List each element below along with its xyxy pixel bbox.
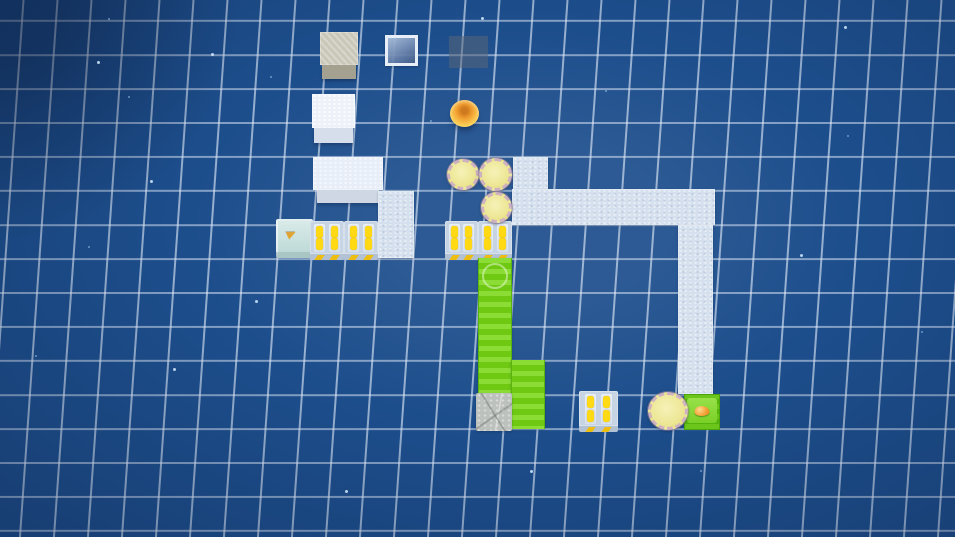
path-band-horizontal[interactable] (512, 189, 715, 225)
conveyor-b1[interactable] (445, 221, 478, 260)
dust-speck (921, 331, 923, 333)
belt-dash (587, 410, 594, 422)
belt-dash (365, 226, 372, 238)
dust-speck (530, 470, 533, 473)
belt-dash (587, 396, 594, 408)
gear-button-2[interactable] (479, 158, 512, 191)
belt-dash (499, 226, 506, 238)
dust-speck (35, 355, 37, 357)
target-ring (482, 263, 508, 289)
dust-speck (128, 96, 130, 98)
green-belt-a[interactable] (478, 258, 512, 395)
belt-dash (484, 238, 491, 250)
dust-speck (800, 254, 803, 257)
ghost-tile[interactable] (449, 36, 488, 68)
dust-speck (88, 246, 90, 248)
dust-speck (108, 18, 110, 20)
conveyor-lane (348, 224, 359, 252)
raised-platform-top-face (313, 157, 383, 190)
conveyor-a2[interactable] (344, 221, 378, 260)
cracked-stone-tile[interactable] (476, 393, 512, 431)
conveyor-lane (463, 224, 474, 252)
dust-speck (270, 76, 272, 78)
goal-tile[interactable] (684, 394, 720, 430)
gear-button-3[interactable] (481, 192, 512, 223)
belt-dash (451, 226, 458, 238)
dust-speck (255, 300, 258, 303)
belt-dash (331, 226, 338, 238)
orange-orb[interactable] (450, 100, 479, 127)
gear-button-4[interactable] (648, 392, 688, 430)
dust-speck (430, 120, 432, 122)
dust-speck (481, 17, 484, 20)
ice-cube-top-face (312, 94, 355, 128)
belt-dash (350, 238, 357, 250)
belt-dash (603, 410, 610, 422)
belt-dash (331, 238, 338, 250)
ice-cube[interactable] (312, 94, 355, 143)
belt-dash (499, 238, 506, 250)
stone-cube-front-face (322, 65, 356, 79)
path-tile-vertical[interactable] (378, 191, 414, 258)
belt-dash (316, 226, 323, 238)
belt-dash (465, 238, 472, 250)
belt-dash (465, 226, 472, 238)
belt-dash (350, 226, 357, 238)
conveyor-lane (482, 224, 493, 252)
conveyor-lane (449, 224, 460, 252)
conveyor-lane (601, 394, 612, 424)
conveyor-lane (497, 224, 508, 252)
gear-button-1[interactable] (447, 159, 479, 190)
arrow-icon (286, 228, 298, 239)
spawn-pad[interactable] (276, 219, 313, 258)
fish-icon (695, 406, 710, 416)
dust-speck (844, 26, 847, 29)
conveyor-c1[interactable] (579, 391, 618, 432)
path-column-vertical[interactable] (678, 225, 713, 394)
dust-speck (173, 368, 176, 371)
dust-speck (847, 135, 849, 137)
belt-dash (484, 226, 491, 238)
game-board[interactable] (0, 0, 955, 537)
dust-speck (700, 470, 702, 472)
belt-dash (451, 238, 458, 250)
belt-dash (365, 238, 372, 250)
conveyor-lane (363, 224, 374, 252)
dust-speck (345, 490, 348, 493)
raised-platform[interactable] (313, 157, 383, 203)
dust-speck (605, 90, 607, 92)
conveyor-lane (329, 224, 340, 252)
conveyor-lane (585, 394, 596, 424)
belt-dash (603, 396, 610, 408)
dust-speck (97, 61, 100, 64)
dust-speck (211, 53, 214, 56)
stone-cube[interactable] (320, 32, 358, 79)
stone-cube-top-face (320, 32, 358, 65)
conveyor-lane (314, 224, 325, 252)
raised-platform-front-face (317, 190, 379, 203)
dust-speck (150, 180, 153, 183)
frame-tile[interactable] (385, 35, 418, 66)
ice-cube-front-face (314, 128, 353, 143)
green-belt-b[interactable] (511, 360, 545, 429)
belt-dash (316, 238, 323, 250)
conveyor-b2[interactable] (478, 221, 512, 260)
path-corner-stub[interactable] (513, 157, 548, 192)
conveyor-a1[interactable] (310, 221, 344, 260)
